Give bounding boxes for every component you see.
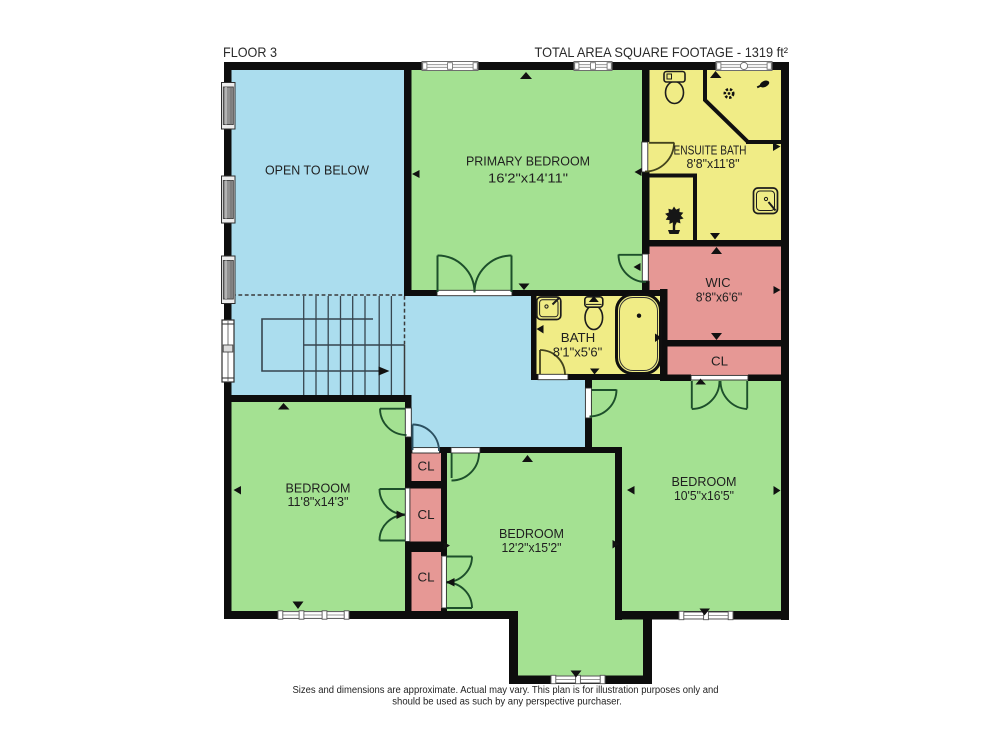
svg-text:CL: CL [711,353,728,368]
svg-text:WIC: WIC [706,275,731,290]
svg-text:10'5"x16'5": 10'5"x16'5" [674,488,734,503]
svg-text:8'8"x11'8": 8'8"x11'8" [687,156,740,171]
svg-text:should be used as such by any: should be used as such by any perspectiv… [392,697,622,708]
svg-text:12'2"x15'2": 12'2"x15'2" [502,540,562,555]
svg-text:11'8"x14'3": 11'8"x14'3" [288,494,349,509]
svg-text:8'8"x6'6": 8'8"x6'6" [696,289,743,304]
svg-text:BEDROOM: BEDROOM [672,474,737,489]
svg-text:BATH: BATH [561,330,596,345]
svg-text:TOTAL AREA SQUARE FOOTAGE - 13: TOTAL AREA SQUARE FOOTAGE - 1319 ft² [535,44,789,60]
svg-text:OPEN TO BELOW: OPEN TO BELOW [265,163,370,178]
svg-text:CL: CL [418,459,435,474]
svg-text:Sizes and dimensions are appro: Sizes and dimensions are approximate. Ac… [293,685,719,696]
svg-text:PRIMARY BEDROOM: PRIMARY BEDROOM [466,154,590,169]
svg-text:FLOOR 3: FLOOR 3 [223,44,277,60]
svg-text:8'1"x5'6": 8'1"x5'6" [553,344,603,359]
svg-text:BEDROOM: BEDROOM [499,526,564,541]
svg-text:CL: CL [418,507,435,522]
svg-text:CL: CL [418,570,435,585]
svg-text:16'2"x14'11": 16'2"x14'11" [488,171,568,186]
